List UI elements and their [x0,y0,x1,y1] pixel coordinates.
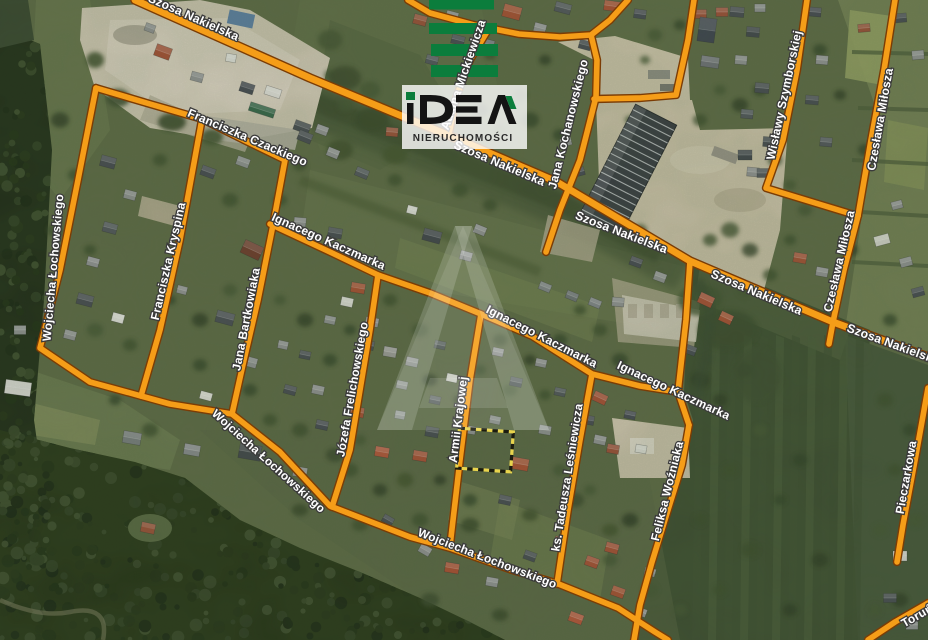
svg-text:NIERUCHOMOŚCI: NIERUCHOMOŚCI [413,131,513,144]
